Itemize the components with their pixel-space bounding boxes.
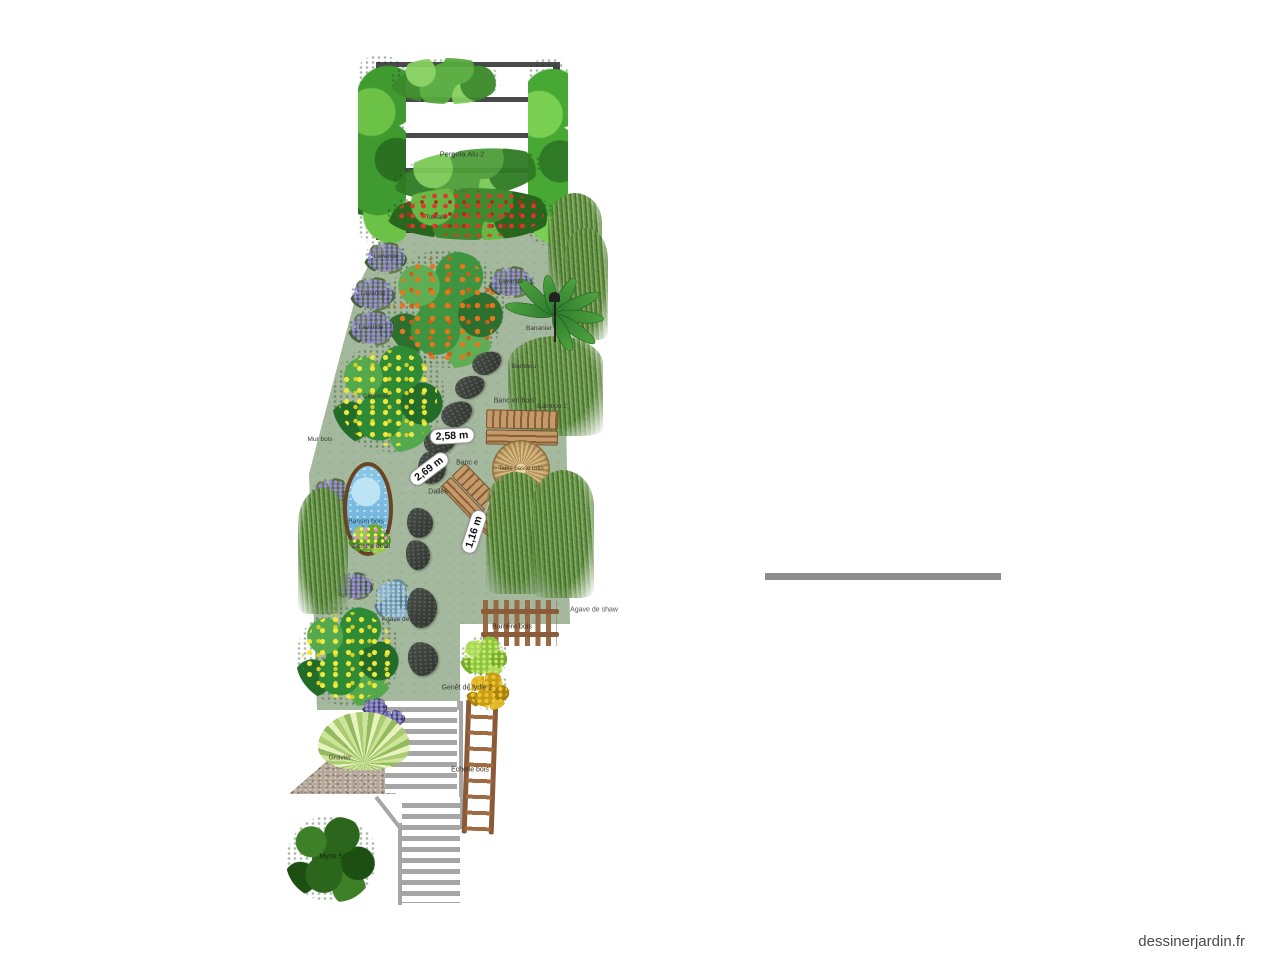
plant-label: Myrte 5	[319, 854, 342, 861]
plant-label: Lavande	[374, 254, 399, 261]
tomato-plant[interactable]	[386, 188, 554, 240]
stairs-lower[interactable]	[402, 797, 460, 903]
blue-foliage-texture	[376, 581, 409, 620]
object-label: Gravier	[329, 755, 352, 762]
plant-label: Jacinthe d'eau	[352, 544, 391, 550]
plant-label: Citronnier	[363, 394, 391, 401]
lamp-post[interactable]	[549, 290, 560, 342]
plant-label: Genêt de lydie 2	[442, 685, 493, 692]
lemon-fruits	[302, 612, 394, 700]
plant-label: Lavande	[499, 279, 524, 286]
plant-label: Bambou	[512, 364, 536, 371]
plant-label: Mur bois	[308, 437, 333, 444]
bamboo-plant[interactable]	[298, 488, 348, 614]
object-label: Barrière bois	[492, 624, 532, 631]
plant-label: Bananier	[526, 326, 552, 333]
plant-label: Agave de shaw	[570, 607, 618, 614]
tomato-fruits	[396, 191, 544, 237]
lamp-pole	[554, 300, 557, 342]
object-label: Banc en bois	[494, 398, 534, 405]
plant-label: Lavande	[359, 325, 384, 332]
climbing-vine[interactable]	[390, 58, 500, 104]
object-label: Table basse rotin	[498, 466, 543, 472]
garden-plan-canvas: 2,58 m 2,69 m 1,16 m Pergola Alu 2 Tomat…	[0, 0, 1280, 960]
orange-fruits	[393, 257, 497, 361]
bamboo-plant[interactable]	[532, 470, 594, 598]
object-label: Echelle bois	[451, 767, 489, 774]
object-label: Banc e	[456, 460, 478, 467]
foliage-texture	[463, 639, 505, 676]
object-label: Dalles	[428, 489, 447, 496]
pergola-label: Pergola Alu 2	[440, 150, 485, 158]
object-label: Bassin bois	[348, 519, 384, 526]
bench-backrest	[486, 409, 558, 429]
watermark: dessinerjardin.fr	[1138, 933, 1245, 950]
stairs-left-edge-line	[398, 823, 402, 905]
measurement-pill[interactable]: 2,58 m	[429, 427, 474, 445]
plant-label: Agave de shaw	[382, 617, 426, 624]
plant-label: Lavande	[361, 291, 386, 298]
plant-label: Tomate	[425, 215, 446, 222]
boundary-wall[interactable]	[765, 573, 1001, 580]
plant-label: Bambou 2	[537, 404, 567, 411]
